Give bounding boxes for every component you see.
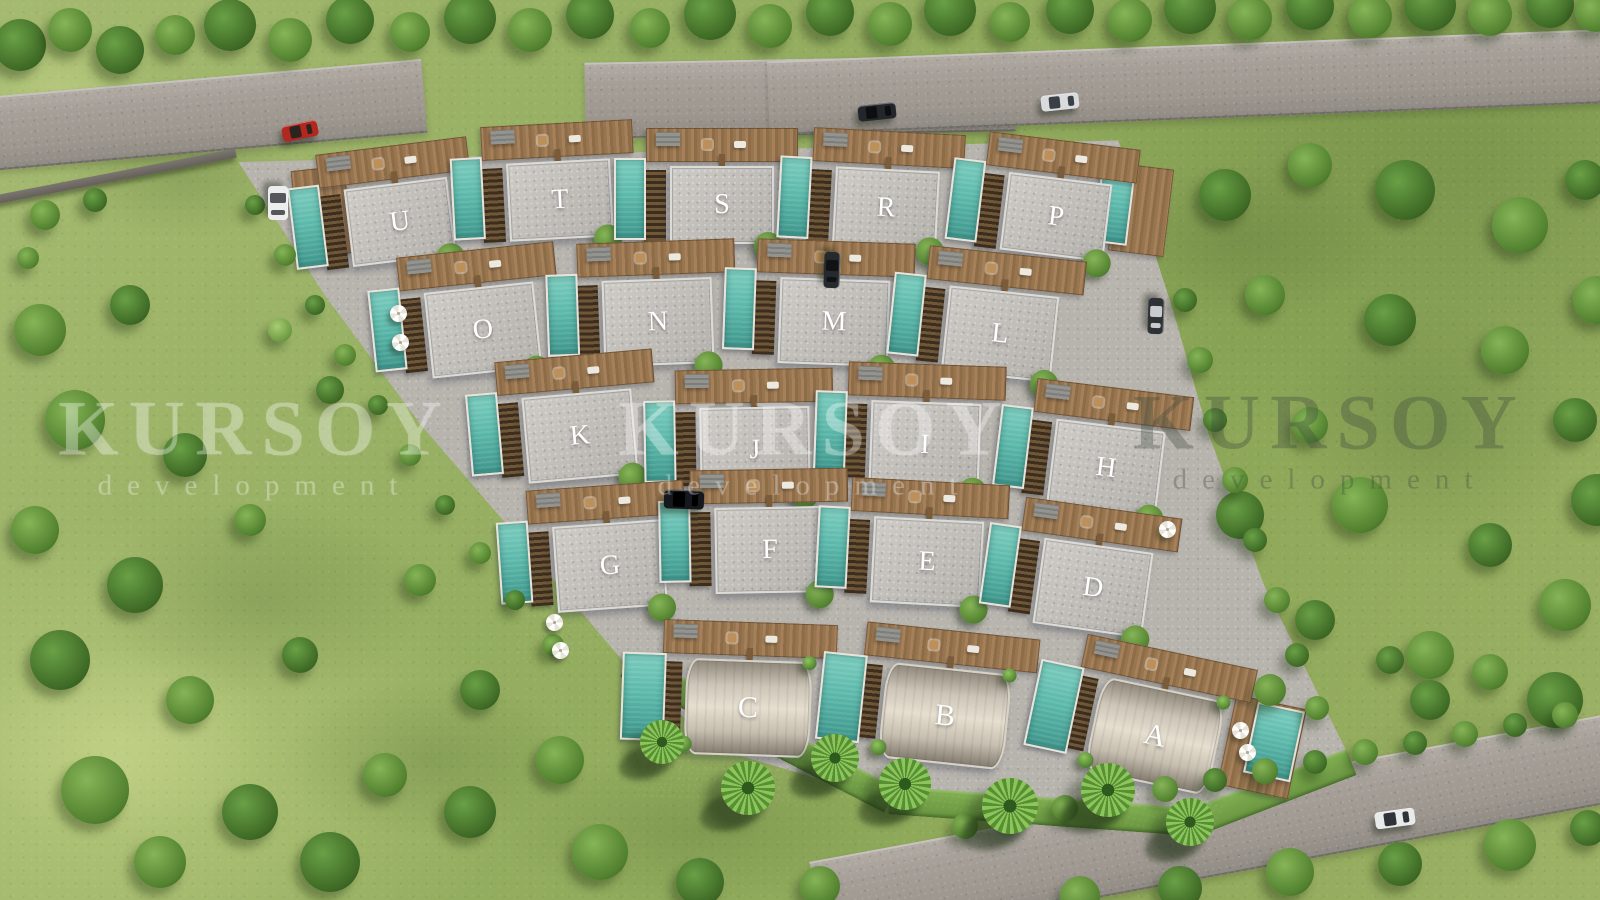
tree xyxy=(1403,731,1427,755)
tree xyxy=(1203,408,1227,432)
pergola xyxy=(406,258,431,274)
suv-black-inner-path xyxy=(664,489,705,509)
pergola xyxy=(861,481,886,496)
tree xyxy=(1452,721,1478,747)
pergola xyxy=(998,137,1024,154)
villa-pool xyxy=(643,400,676,483)
villa-roof: S xyxy=(670,166,774,244)
tree xyxy=(1245,275,1285,315)
deck-lounger xyxy=(1019,268,1032,276)
villa-I: I xyxy=(869,400,982,490)
villa-R: R xyxy=(832,166,940,249)
tree xyxy=(508,8,552,52)
tree xyxy=(222,784,278,840)
deck-table xyxy=(636,253,645,262)
villa-letter-C: C xyxy=(737,693,758,724)
tree xyxy=(163,433,207,477)
tree xyxy=(469,542,491,564)
villa-G: G xyxy=(552,519,668,612)
deck-lounger xyxy=(1114,522,1127,531)
tree xyxy=(204,0,256,51)
car-dark-east-path xyxy=(1147,298,1164,335)
deck-table xyxy=(1044,150,1054,160)
villa-roof: M xyxy=(778,277,891,367)
tree xyxy=(83,188,107,212)
tree xyxy=(1199,169,1251,221)
villa-pool xyxy=(813,390,848,473)
tree xyxy=(1468,0,1512,36)
tree xyxy=(45,390,105,450)
umbrella xyxy=(552,642,569,659)
umbrella xyxy=(1232,722,1249,739)
villa-letter-G: G xyxy=(599,551,621,580)
deck-lounger xyxy=(1126,402,1139,410)
tree xyxy=(1481,326,1529,374)
deck-table xyxy=(1093,397,1103,407)
villa-roof: F xyxy=(714,506,825,594)
villa-letter-J: J xyxy=(749,436,760,464)
deck-lounger xyxy=(587,366,600,374)
car-rear-window xyxy=(1402,811,1409,823)
tree xyxy=(1348,0,1392,38)
pergola xyxy=(767,243,791,258)
villa-roof: D xyxy=(1033,538,1154,638)
deck-lounger xyxy=(734,141,746,148)
pergola xyxy=(1045,383,1071,400)
tree xyxy=(1503,713,1527,737)
pergola xyxy=(938,250,963,266)
villa-roof: C xyxy=(683,658,812,758)
villa-pool xyxy=(614,158,646,240)
tree xyxy=(30,200,60,230)
tree xyxy=(1222,467,1248,493)
villa-T: T xyxy=(506,158,614,241)
tree xyxy=(0,19,46,71)
villa-pool xyxy=(815,505,851,589)
pergola xyxy=(326,155,352,172)
site-plan-render: UTSRPONMLKJIHGFEDCBA KURSOY development … xyxy=(0,0,1600,900)
tree xyxy=(363,753,407,797)
deck-table xyxy=(554,368,564,378)
tree xyxy=(1303,750,1327,774)
deck-table xyxy=(1082,517,1092,527)
tree xyxy=(274,244,296,266)
tree xyxy=(1288,143,1332,187)
tree xyxy=(1228,0,1272,40)
pergola xyxy=(536,492,561,508)
pergola xyxy=(505,363,530,379)
tree xyxy=(17,247,39,269)
deck-lounger xyxy=(767,382,779,389)
villa-P: P xyxy=(1000,172,1113,262)
villa-letter-H: H xyxy=(1094,453,1117,483)
tree xyxy=(1187,347,1213,373)
deck-table xyxy=(373,159,383,169)
tree xyxy=(30,630,90,690)
tree xyxy=(460,670,500,710)
car-rear-window xyxy=(1151,323,1161,328)
car-rear-window xyxy=(827,277,837,282)
umbrella xyxy=(1239,744,1256,761)
tree xyxy=(1292,407,1328,443)
tree xyxy=(566,0,614,39)
tree xyxy=(748,4,792,48)
umbrella xyxy=(392,334,409,351)
deck-table xyxy=(538,136,547,145)
deck-lounger xyxy=(1075,155,1088,163)
villa-letter-F: F xyxy=(762,536,778,564)
villa-letter-L: L xyxy=(990,319,1010,349)
deck-table xyxy=(929,640,939,650)
villa-K: K xyxy=(521,388,638,483)
villa-roof: E xyxy=(870,516,984,608)
tree xyxy=(572,824,628,880)
tree xyxy=(1295,600,1335,640)
umbrella xyxy=(390,305,407,322)
tree xyxy=(155,15,195,55)
tree xyxy=(1553,398,1597,442)
tree xyxy=(1352,739,1378,765)
tree xyxy=(390,12,430,52)
tree xyxy=(1376,646,1404,674)
tree xyxy=(1332,477,1388,533)
villa-roof: R xyxy=(832,166,940,249)
tree xyxy=(1173,288,1197,312)
tree xyxy=(1573,276,1600,324)
deck-table xyxy=(907,375,916,384)
deck-lounger xyxy=(669,253,681,260)
deck-lounger xyxy=(618,496,630,504)
deck-lounger xyxy=(940,377,952,384)
villa-B: B xyxy=(877,662,1012,771)
villa-letter-D: D xyxy=(1081,573,1105,604)
pergola xyxy=(876,626,901,642)
pergola xyxy=(586,247,610,262)
tree xyxy=(1571,474,1600,526)
tree xyxy=(1410,680,1450,720)
villa-roof: B xyxy=(877,662,1012,771)
villa-pool xyxy=(658,500,691,583)
pergola xyxy=(858,366,882,381)
louver-strip xyxy=(644,170,666,244)
deck-table xyxy=(727,633,736,642)
deck-lounger xyxy=(943,495,955,503)
tree xyxy=(684,0,736,40)
tree xyxy=(1364,294,1416,346)
villa-pool xyxy=(722,267,757,350)
deck-lounger xyxy=(782,482,794,489)
car-windshield xyxy=(1150,306,1162,317)
tree xyxy=(990,2,1030,42)
tree xyxy=(11,506,59,554)
tree xyxy=(800,866,840,900)
tree xyxy=(48,8,92,52)
tree xyxy=(268,18,312,62)
deck-lounger xyxy=(489,260,502,268)
tree xyxy=(1305,696,1329,720)
car-rear-window xyxy=(884,106,891,117)
tree xyxy=(305,295,325,315)
tree xyxy=(505,590,525,610)
tree xyxy=(1243,528,1267,552)
tree xyxy=(1254,674,1286,706)
car-rear-window xyxy=(271,210,285,215)
van-white-entrance xyxy=(268,186,288,220)
tree xyxy=(868,2,912,46)
deck-table xyxy=(910,492,919,501)
deck-table xyxy=(986,263,996,273)
pergola xyxy=(490,129,515,144)
villa-S: S xyxy=(670,166,774,244)
villa-letter-M: M xyxy=(821,308,847,337)
tree xyxy=(316,376,344,404)
tree xyxy=(334,344,356,366)
villa-letter-T: T xyxy=(551,186,570,215)
villa-E: E xyxy=(870,516,984,608)
palm-tree xyxy=(721,761,775,815)
tree xyxy=(326,0,374,44)
tree xyxy=(245,195,265,215)
umbrella xyxy=(1159,521,1176,538)
tree xyxy=(1484,819,1536,871)
tree xyxy=(630,8,670,48)
pergola xyxy=(823,132,848,147)
car-windshield xyxy=(673,491,686,506)
villa-letter-I: I xyxy=(920,431,930,459)
car-windshield xyxy=(289,125,302,139)
tree xyxy=(1526,0,1574,28)
tree xyxy=(1552,702,1578,728)
villa-letter-R: R xyxy=(876,194,896,223)
villa-roof: I xyxy=(869,400,982,490)
tree xyxy=(1468,523,1512,567)
pergola xyxy=(700,474,724,488)
tree xyxy=(536,736,584,784)
tree xyxy=(924,0,976,36)
palm-tree xyxy=(811,734,859,782)
tree xyxy=(1264,587,1290,613)
villa-letter-N: N xyxy=(647,308,668,337)
tree xyxy=(1266,848,1314,896)
villa-pool xyxy=(815,651,868,743)
villa-letter-B: B xyxy=(933,700,956,732)
tree xyxy=(1575,0,1600,32)
deck-table xyxy=(703,140,712,149)
deck-table xyxy=(749,481,758,490)
tree xyxy=(368,395,388,415)
deck-lounger xyxy=(404,156,417,164)
tree xyxy=(300,832,360,892)
tree xyxy=(282,637,318,673)
palm-tree xyxy=(640,720,684,764)
tree xyxy=(166,676,214,724)
tree xyxy=(676,858,724,900)
deck-table xyxy=(456,263,466,273)
tree xyxy=(1570,810,1600,846)
umbrella xyxy=(546,614,563,631)
tree xyxy=(1472,654,1508,690)
tree xyxy=(107,557,163,613)
villa-letter-O: O xyxy=(471,315,494,345)
car-windshield xyxy=(270,193,286,203)
villa-D: D xyxy=(1033,538,1154,638)
villa-letter-S: S xyxy=(714,191,730,219)
deck-lounger xyxy=(849,254,861,261)
pergola xyxy=(656,132,680,146)
tree xyxy=(110,285,150,325)
villa-C: C xyxy=(683,658,812,758)
tree xyxy=(1164,0,1216,34)
tree xyxy=(404,564,436,596)
tree xyxy=(444,0,496,44)
car-windshield xyxy=(1048,96,1060,109)
car-windshield xyxy=(826,260,838,271)
deck-table xyxy=(585,498,595,508)
tree xyxy=(14,304,66,356)
tree xyxy=(806,0,854,36)
deck-table xyxy=(734,381,743,390)
car-rear-window xyxy=(1067,96,1074,107)
tree xyxy=(1203,768,1227,792)
tree xyxy=(1378,842,1422,886)
deck-table xyxy=(1146,659,1157,670)
tree xyxy=(1046,0,1094,34)
tree xyxy=(1404,0,1456,31)
tree xyxy=(435,495,455,515)
palm-tree xyxy=(879,758,931,810)
villa-letter-A: A xyxy=(1141,719,1168,753)
deck-lounger xyxy=(765,636,777,643)
car-windshield xyxy=(865,106,877,119)
car-dark-inner-path xyxy=(823,252,840,289)
tree xyxy=(134,836,186,888)
villa-pool xyxy=(450,157,486,241)
pergola xyxy=(685,374,709,388)
villa-letter-P: P xyxy=(1047,202,1066,232)
lawn-patch xyxy=(280,680,580,840)
tree xyxy=(1492,197,1548,253)
villa-F: F xyxy=(714,506,825,594)
tree xyxy=(1406,631,1454,679)
tree xyxy=(1286,0,1334,30)
villa-letter-U: U xyxy=(388,207,411,237)
tree xyxy=(1539,579,1591,631)
tree xyxy=(268,318,292,342)
tree xyxy=(1152,776,1178,802)
palm-tree xyxy=(1081,763,1135,817)
tree xyxy=(234,504,266,536)
car-rear-window xyxy=(692,493,698,506)
palm-tree xyxy=(1166,798,1214,846)
tree xyxy=(444,786,496,838)
deck-lounger xyxy=(901,145,913,153)
villa-M: M xyxy=(778,277,891,367)
tree xyxy=(399,444,421,466)
tree xyxy=(1285,643,1309,667)
tree xyxy=(61,756,129,824)
pergola xyxy=(673,623,697,638)
tree xyxy=(1252,758,1278,784)
deck-lounger xyxy=(967,645,980,653)
villa-letter-E: E xyxy=(918,548,937,577)
louver-strip xyxy=(688,512,711,586)
tree xyxy=(1108,0,1152,42)
car-rear-window xyxy=(306,124,313,135)
watermark-subtext: development xyxy=(58,470,452,503)
villa-pool xyxy=(776,155,812,239)
villa-letter-K: K xyxy=(569,421,592,451)
car-windshield xyxy=(1383,811,1397,826)
tree xyxy=(96,26,144,74)
deck-lounger xyxy=(569,135,581,143)
palm-tree xyxy=(982,778,1038,834)
tree xyxy=(1375,160,1435,220)
villa-pool xyxy=(545,274,580,357)
deck-table xyxy=(870,142,879,151)
tree xyxy=(1565,160,1600,200)
